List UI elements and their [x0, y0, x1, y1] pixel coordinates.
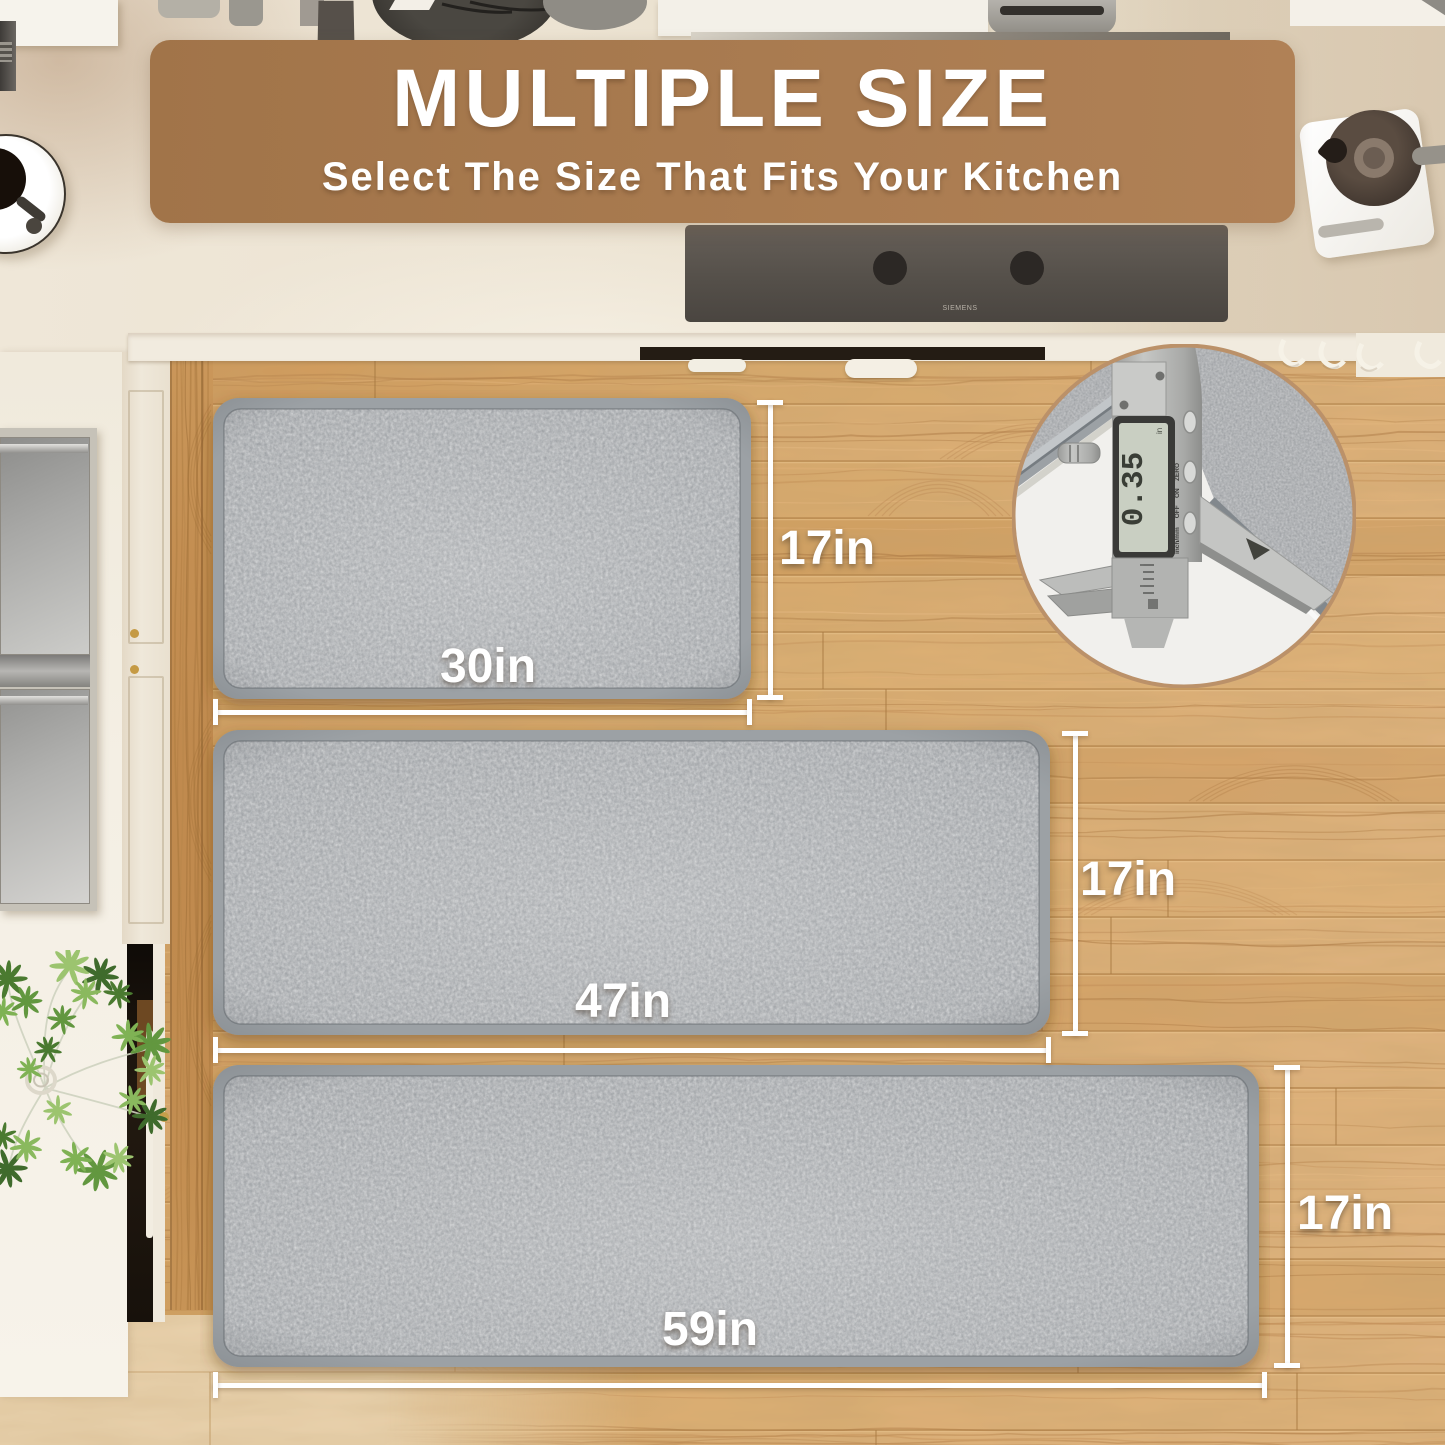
svg-text:0.35: 0.35 — [1117, 452, 1152, 526]
svg-text:in: in — [1155, 428, 1164, 434]
svg-text:inch/mm OFF ON ZERO: inch/mm OFF ON ZERO — [1174, 463, 1181, 554]
